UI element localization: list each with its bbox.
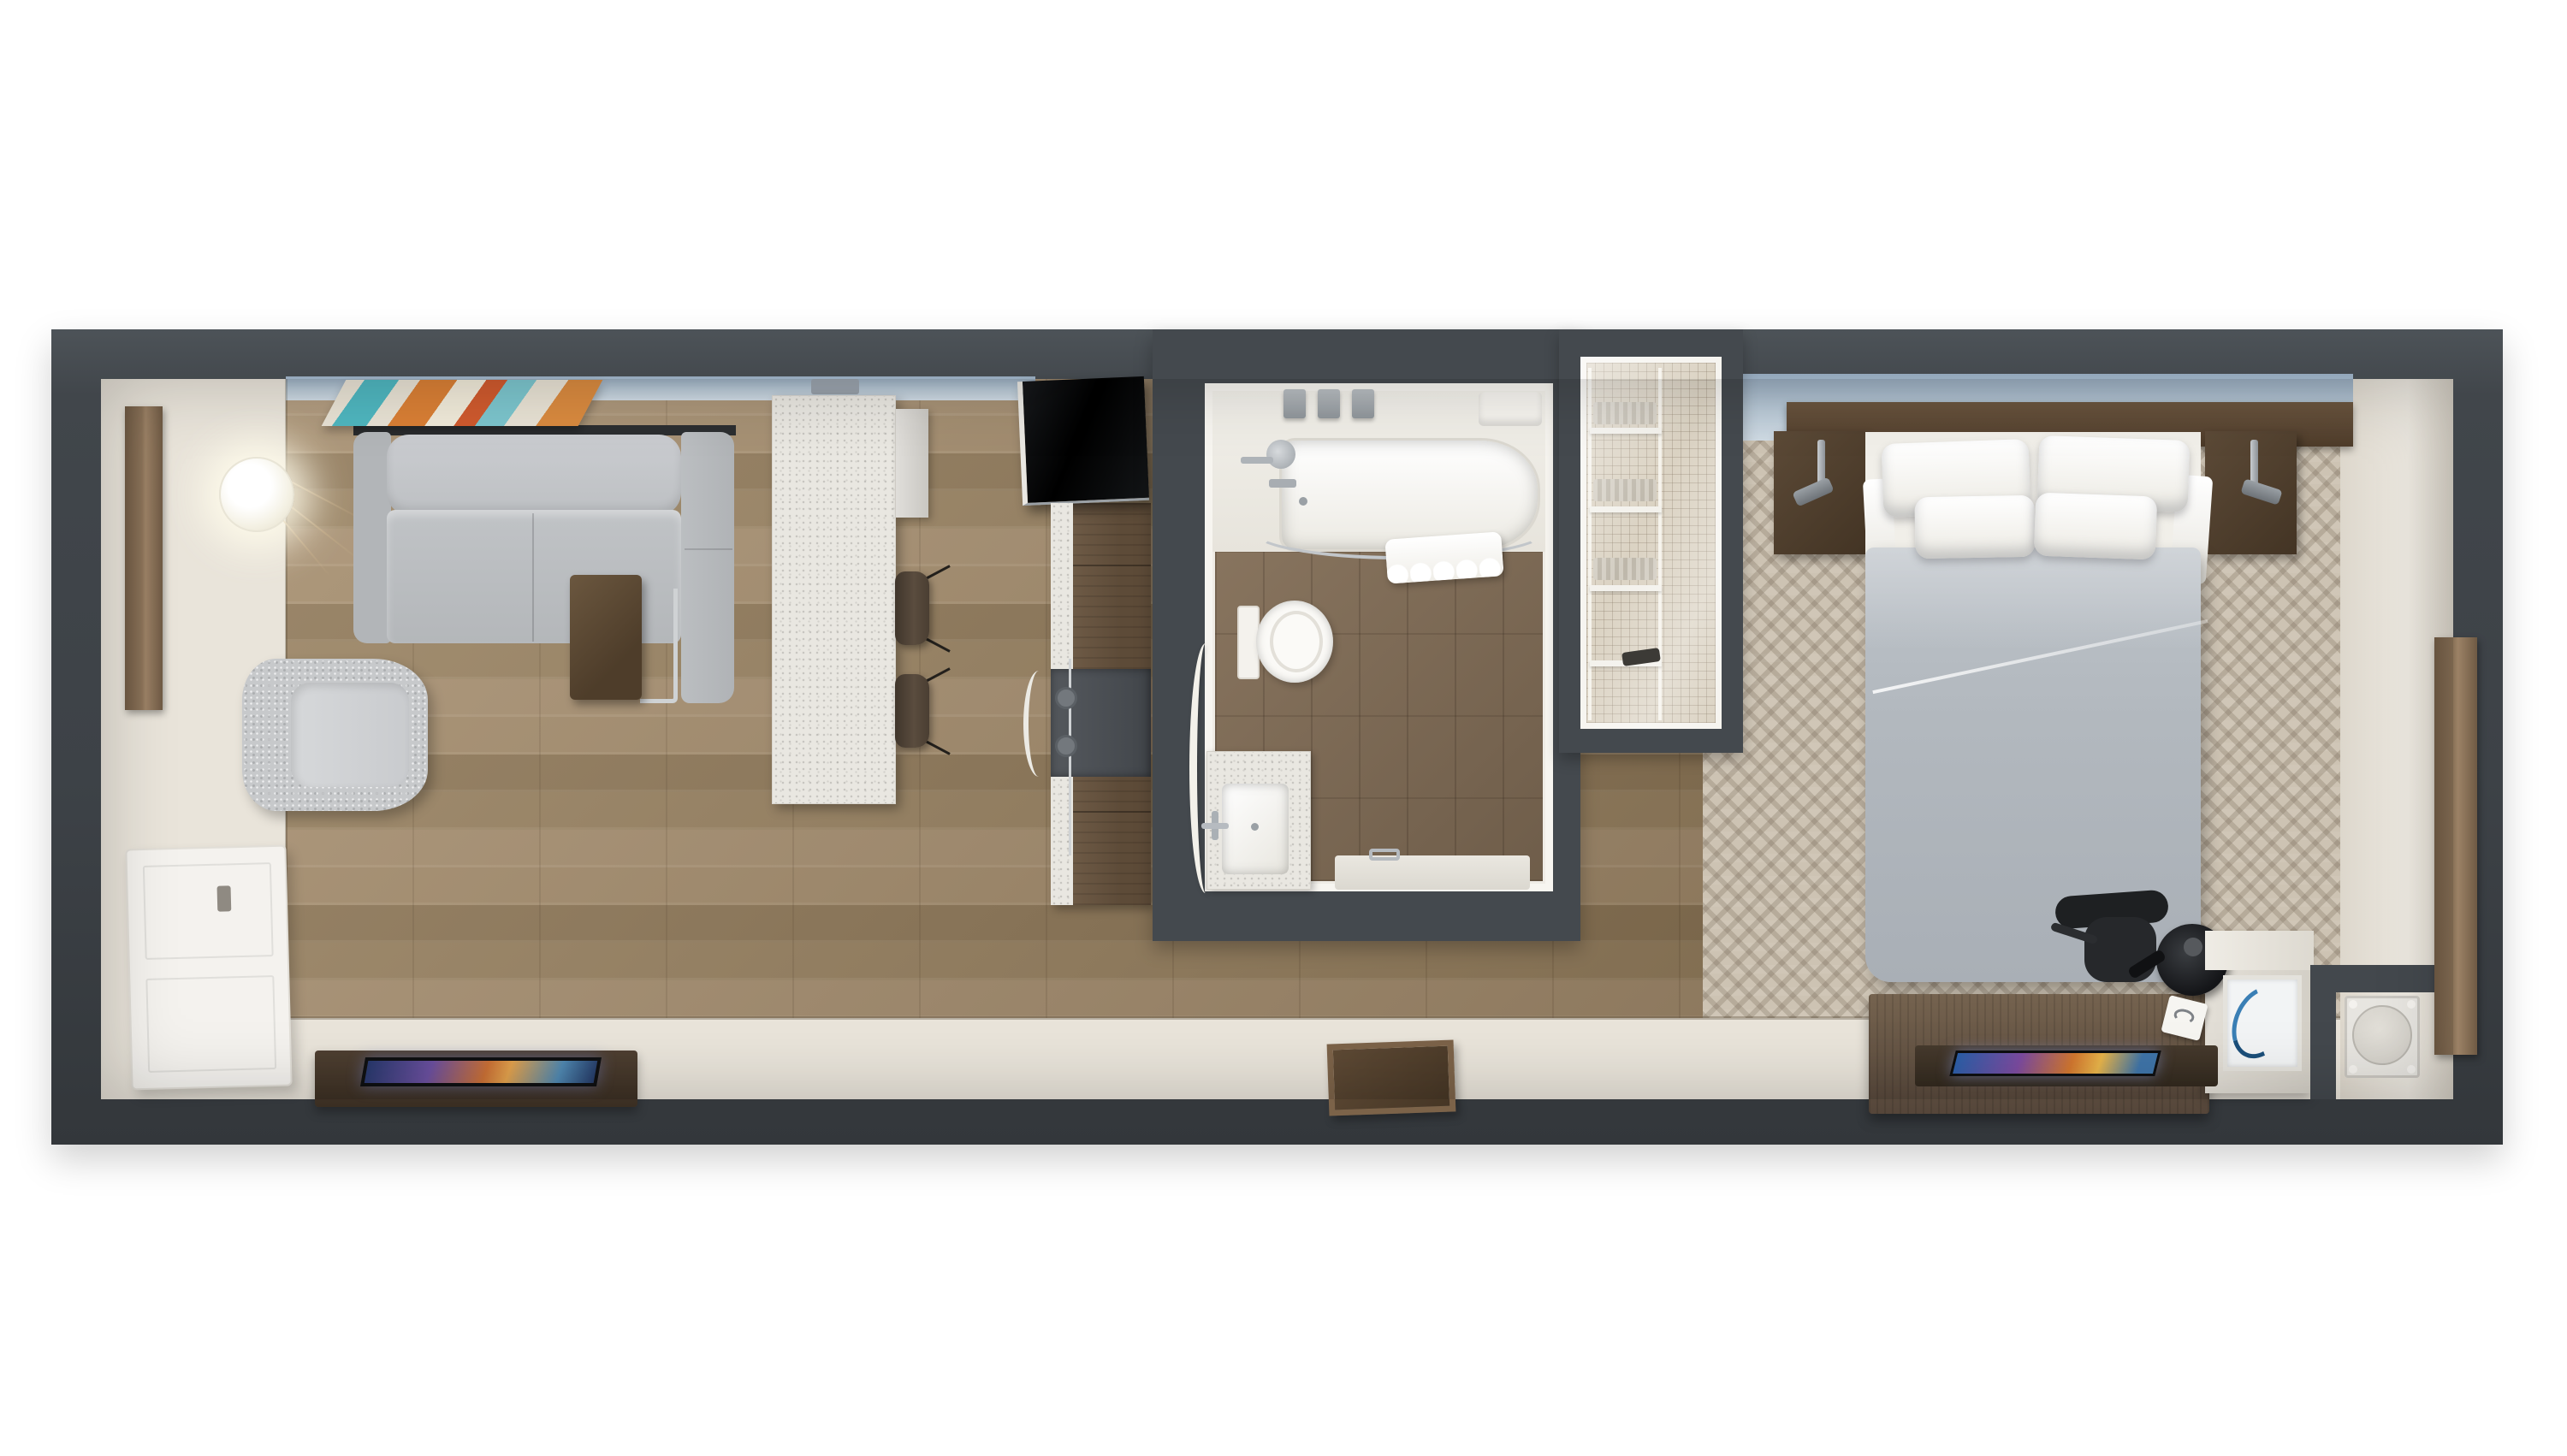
utility-unit [2345, 996, 2420, 1078]
amenity-bottle [1352, 389, 1374, 418]
vanity-drain [1251, 823, 1259, 831]
coffee-maker-cap [2184, 938, 2202, 956]
pillow-front-right [2034, 493, 2157, 560]
utility-nook-wall [2310, 965, 2336, 1099]
sconce-lamp [2250, 440, 2258, 486]
bar-stool [895, 674, 929, 748]
pendant-lamp [219, 457, 294, 532]
bathroom-door-leaf [1189, 643, 1222, 893]
appliance-knob [1055, 735, 1077, 757]
desk-chair-seat [2084, 917, 2156, 982]
armchair-seat [291, 683, 409, 787]
wall-art [322, 380, 603, 426]
under-counter-appliance [1051, 669, 1151, 777]
shower-curtain [1384, 531, 1503, 583]
kitchen-island [772, 395, 896, 804]
tub-drain [1299, 497, 1307, 506]
amenity-bottle [1283, 389, 1306, 418]
sofa-back-cushion [387, 435, 681, 515]
tub-spout [1269, 479, 1296, 488]
scale-handle [1369, 849, 1400, 861]
amenity-bottle [1318, 389, 1340, 418]
counter-seam [1073, 565, 1151, 566]
pillow-front-left [1914, 495, 2035, 559]
toilet-seat [1270, 611, 1323, 672]
bedroom-mirror-plank [2434, 637, 2477, 1055]
sofa-chaise [681, 432, 734, 703]
soap-shelf [1479, 392, 1542, 426]
appliance-knob [1055, 687, 1077, 709]
dresser-artwork [2223, 975, 2302, 1071]
utility-corner-cap [2407, 1000, 2416, 1009]
card-mark [2173, 1007, 2196, 1025]
sofa-chaise-seam [685, 548, 732, 550]
utility-corner-cap [2407, 1065, 2416, 1074]
utility-unit-lid [2352, 1005, 2412, 1065]
sofa-seam [532, 513, 534, 642]
tub-faucet [1266, 440, 1295, 469]
tablet-screen [1949, 1051, 2161, 1076]
side-table [570, 575, 642, 700]
utility-corner-cap [2349, 1000, 2357, 1009]
entry-mirror-plank [125, 406, 163, 710]
side-table-frame [640, 589, 678, 703]
luggage-tray [1327, 1039, 1456, 1116]
island-side-cabinet [896, 409, 928, 518]
vanity-faucet-handle [1201, 823, 1229, 829]
door-panel [145, 975, 276, 1073]
bar-stool [895, 571, 929, 645]
bath-mat [1335, 855, 1530, 890]
dresser-top [2205, 931, 2314, 970]
utility-corner-cap [2349, 1065, 2357, 1074]
entry-door [125, 845, 292, 1091]
door-handle [217, 885, 232, 911]
artwork-swirl [2221, 977, 2300, 1068]
shower-glass [1580, 357, 1722, 729]
floor-plan-canvas [0, 0, 2567, 1456]
sofa-armrest [353, 432, 391, 643]
tub-faucet-handle [1241, 457, 1273, 464]
door-panel [143, 862, 274, 960]
counter-seam [1073, 811, 1151, 813]
appliance-door-arc [1023, 671, 1054, 777]
black-appliance-unit [1017, 376, 1149, 506]
window-hardware [811, 379, 859, 394]
tv-screen [360, 1057, 602, 1086]
